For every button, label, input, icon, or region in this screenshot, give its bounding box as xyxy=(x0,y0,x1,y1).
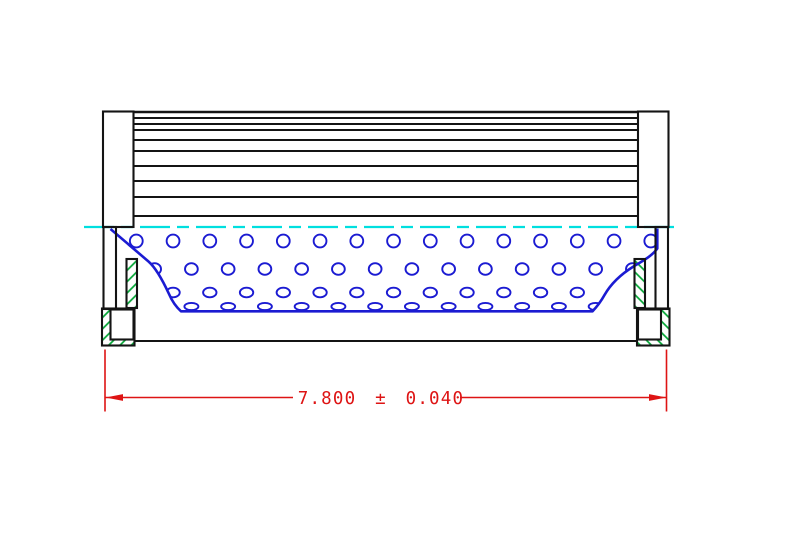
core-hole xyxy=(240,235,253,248)
core-hole xyxy=(203,288,216,298)
core-hole xyxy=(203,235,216,248)
cap-foot-inner xyxy=(638,310,661,340)
core-hole xyxy=(184,303,198,310)
core-hole xyxy=(681,235,694,248)
core-hole xyxy=(387,235,400,248)
core-hole xyxy=(185,263,198,275)
cap-flange xyxy=(638,112,669,228)
core-hole xyxy=(313,288,326,298)
core-hole xyxy=(681,288,694,298)
core-hole xyxy=(497,288,510,298)
core-hole xyxy=(167,235,180,248)
cad-drawing-canvas: 7.800 ± 0.040 xyxy=(0,0,789,546)
core-hole xyxy=(516,263,529,275)
core-hole xyxy=(461,235,474,248)
core-hole xyxy=(460,288,473,298)
core-hole xyxy=(571,288,584,298)
core-hole xyxy=(424,235,437,248)
core-hole xyxy=(314,235,327,248)
core-hole xyxy=(258,303,272,310)
cap-foot-inner xyxy=(111,310,134,340)
cap-wall xyxy=(104,227,117,309)
core-hole xyxy=(130,235,143,248)
dimension-arrow-right xyxy=(649,394,667,401)
media-edge-curve xyxy=(111,229,658,312)
filter-element-drawing: 7.800 ± 0.040 xyxy=(0,0,789,546)
core-hole xyxy=(534,288,547,298)
core-hole xyxy=(387,288,400,298)
core-hole xyxy=(259,263,272,275)
core-hole xyxy=(331,303,345,310)
core-hole xyxy=(497,235,510,248)
core-hole xyxy=(553,263,566,275)
dimension-text: 7.800 ± 0.040 xyxy=(298,389,465,409)
core-hole xyxy=(295,263,308,275)
core-hole xyxy=(350,288,363,298)
core-hole xyxy=(442,263,455,275)
core-hole xyxy=(221,303,235,310)
core-hole xyxy=(369,263,382,275)
core-hole xyxy=(332,263,345,275)
core-hole xyxy=(368,303,382,310)
cap-seal-channel xyxy=(127,259,138,308)
core-hole xyxy=(478,303,492,310)
core-hole xyxy=(277,235,290,248)
core-hole xyxy=(240,288,253,298)
core-hole xyxy=(222,263,235,275)
core-hole xyxy=(479,263,492,275)
core-hole xyxy=(552,303,566,310)
cap-flange xyxy=(103,112,134,228)
core-hole xyxy=(148,303,162,310)
core-hole xyxy=(406,263,419,275)
core-hole xyxy=(277,288,290,298)
core-hole xyxy=(295,303,309,310)
core-hole xyxy=(571,235,584,248)
core-perforations xyxy=(111,235,694,311)
core-hole xyxy=(405,303,419,310)
core-hole xyxy=(589,263,602,275)
core-hole xyxy=(515,303,529,310)
dimension-arrow-left xyxy=(106,394,124,401)
core-hole xyxy=(424,288,437,298)
core-hole xyxy=(442,303,456,310)
core-hole xyxy=(534,235,547,248)
core-hole xyxy=(608,235,621,248)
core-hole xyxy=(350,235,363,248)
